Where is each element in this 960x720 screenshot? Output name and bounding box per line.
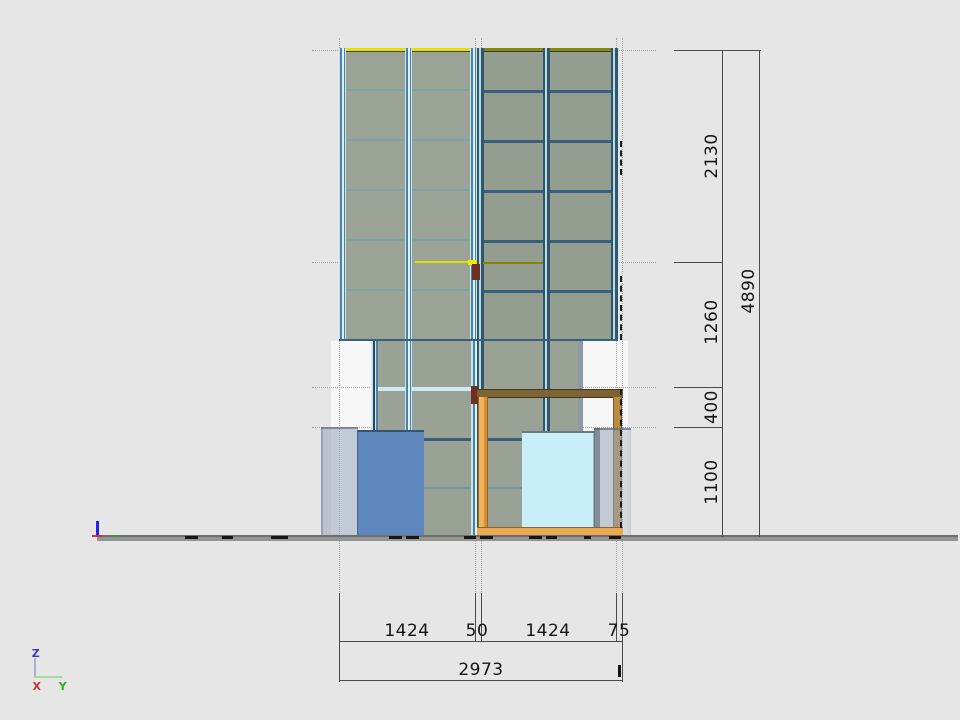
box-blue	[357, 430, 424, 537]
axis-x-label: X	[31, 680, 43, 692]
box-gray-right	[594, 428, 631, 538]
hidden-edge	[620, 276, 622, 340]
ground-dash	[584, 536, 591, 539]
box-gray-left	[321, 427, 358, 538]
dimension-line-outer	[759, 50, 760, 537]
axis-z-label: Z	[30, 647, 42, 659]
timber-beam	[477, 389, 623, 398]
inner-roof-edge-olive	[483, 262, 543, 264]
axis-y-label: Y	[57, 680, 69, 692]
maroon-post-upper	[472, 264, 480, 280]
dimension-label-50: 50	[457, 622, 497, 640]
ground-dash	[464, 536, 476, 539]
dimension-line-inner	[722, 50, 723, 537]
dimension-caret	[618, 665, 621, 677]
hidden-edge	[620, 389, 622, 528]
dimension-label-1424-left: 1424	[377, 622, 437, 640]
origin-z-tick	[96, 521, 99, 536]
hidden-edge	[620, 141, 622, 175]
dimension-line-upper	[339, 641, 623, 642]
mullion	[543, 48, 550, 341]
dimension-label-1100: 1100	[703, 462, 721, 502]
dimension-tick	[674, 262, 723, 263]
origin-y-tick	[111, 535, 119, 537]
ground-dash	[546, 536, 557, 539]
dimension-label-4890: 4890	[740, 271, 758, 311]
dimension-tick	[674, 427, 723, 428]
ground-dash	[389, 536, 402, 539]
ground-dash	[406, 536, 419, 539]
ground-dash	[529, 536, 542, 539]
dimension-label-400: 400	[703, 387, 721, 427]
ground-dash	[185, 536, 198, 539]
mullion	[405, 48, 412, 341]
timber-post-left	[478, 397, 488, 537]
ground-dash	[609, 536, 621, 539]
dimension-label-2973: 2973	[451, 661, 511, 679]
ground-dash	[480, 536, 493, 539]
ground-dash	[271, 536, 288, 539]
dimension-label-2130: 2130	[703, 136, 721, 176]
extension-line	[339, 593, 340, 682]
box-cyan	[522, 431, 595, 528]
mullion	[470, 48, 477, 341]
dimension-label-75: 75	[599, 622, 639, 640]
dimension-label-1260: 1260	[703, 302, 721, 342]
mullion	[477, 48, 484, 341]
axis-y-line	[34, 676, 62, 678]
mullion	[339, 48, 346, 341]
mullion	[611, 48, 618, 341]
origin-x-tick	[92, 535, 102, 537]
dimension-label-1424-right: 1424	[518, 622, 578, 640]
axis-z-line	[34, 658, 36, 677]
inner-roof-edge-yellow	[415, 261, 471, 263]
ground-dash	[222, 536, 233, 539]
dimension-line-lower	[339, 680, 623, 681]
glass-facade-upper-left	[339, 48, 477, 341]
dimension-tick	[674, 50, 761, 51]
glass-facade-upper-right	[477, 48, 618, 341]
transom-light-band	[371, 387, 477, 391]
cad-viewport[interactable]: 2130 1260 400 1100 4890 1424 50 1424 75 …	[0, 0, 960, 720]
